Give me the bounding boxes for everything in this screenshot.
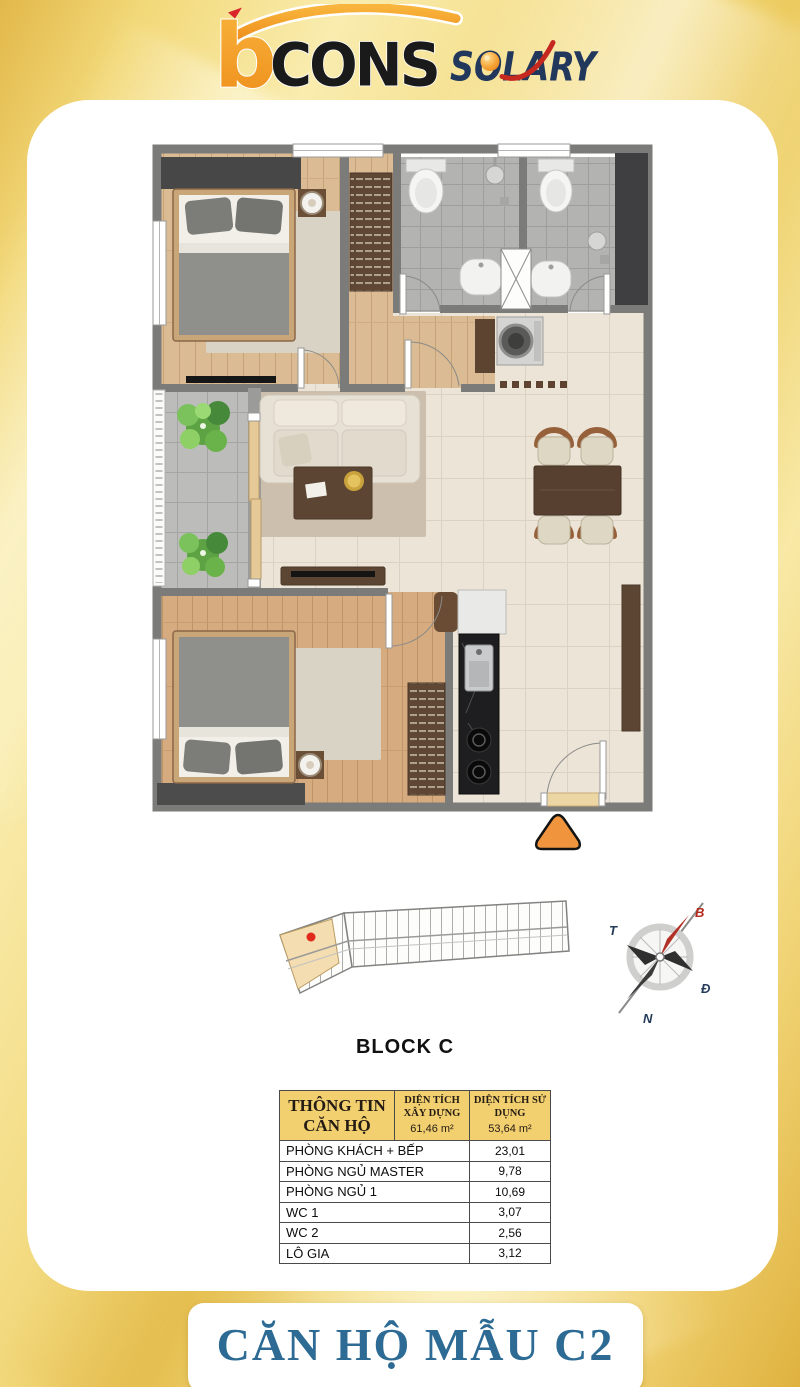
- compass-south-label: N: [643, 1011, 653, 1026]
- built-area-title: DIỆN TÍCH XÂY DỰNG: [404, 1095, 461, 1119]
- wall: [608, 305, 644, 313]
- exterior-ledge: [157, 783, 305, 805]
- master-closet: [350, 173, 392, 291]
- wall: [340, 384, 405, 392]
- wall: [161, 384, 298, 392]
- apartment-info-table: THÔNG TIN CĂN HỘ DIỆN TÍCH XÂY DỰNG 61,4…: [279, 1090, 541, 1264]
- block-label: BLOCK C: [285, 1036, 525, 1059]
- compass-west-label: T: [609, 923, 618, 938]
- master-bed: [173, 189, 295, 341]
- washing-machine: [497, 317, 543, 365]
- apartment-floor-plan: [148, 143, 658, 858]
- corridor-cabinet: [475, 319, 495, 373]
- table-row: PHÒNG KHÁCH + BẾP 23,01: [280, 1141, 551, 1162]
- row-value: 10,69: [470, 1182, 551, 1203]
- apartment-title-banner: CĂN HỘ MẪU C2: [188, 1303, 643, 1387]
- table-row: WC 2 2,56: [280, 1223, 551, 1244]
- bcons-solary-logo: b CONS SOLARY: [202, 4, 602, 100]
- master-wardrobe-dark: [161, 157, 301, 189]
- bedroom2-bed: [173, 631, 295, 783]
- logo-b-letter: b: [214, 5, 277, 101]
- sun-highlight: [484, 55, 489, 60]
- entrance-arrow-icon: [536, 815, 580, 849]
- row-value: 2,56: [470, 1223, 551, 1244]
- master-nightstand: [298, 189, 326, 217]
- logo-cons-text: CONS: [270, 31, 438, 101]
- bedroom2-wardrobe: [408, 683, 445, 795]
- built-area-value: 61,46 m²: [396, 1123, 468, 1136]
- door-jamb: [541, 793, 547, 806]
- row-value: 3,07: [470, 1202, 551, 1223]
- coffee-table: [294, 467, 372, 519]
- table-row: LÔ GIA 3,12: [280, 1243, 551, 1264]
- table-header-usable-area: DIỆN TÍCH SỬ DỤNG 53,64 m²: [470, 1091, 551, 1141]
- unit-location-dot: [307, 933, 316, 942]
- entry-threshold: [547, 793, 599, 806]
- hallway-console: [622, 585, 640, 731]
- row-value: 9,78: [470, 1161, 551, 1182]
- brochure-page: b CONS SOLARY: [0, 0, 800, 1387]
- usable-area-value: 53,64 m²: [471, 1123, 549, 1136]
- logo-solary-text: SOLARY: [450, 45, 599, 91]
- technical-shaft: [501, 249, 531, 309]
- table-header-built-area: DIỆN TÍCH XÂY DỰNG 61,46 m²: [395, 1091, 470, 1141]
- wall: [340, 153, 349, 388]
- row-label: WC 2: [280, 1223, 470, 1244]
- compass-east-label: Đ: [701, 981, 711, 996]
- tv-console: [281, 567, 385, 585]
- row-label: PHÒNG NGỦ MASTER: [280, 1161, 470, 1182]
- row-label: PHÒNG KHÁCH + BẾP: [280, 1141, 470, 1162]
- table-header-info: THÔNG TIN CĂN HỘ: [280, 1091, 395, 1141]
- wall: [519, 153, 527, 253]
- wall: [461, 384, 495, 392]
- usable-area-title: DIỆN TÍCH SỬ DỤNG: [474, 1095, 546, 1119]
- table-row: WC 1 3,07: [280, 1202, 551, 1223]
- structural-column: [615, 153, 648, 305]
- dining-chair: [580, 516, 614, 544]
- table-row: PHÒNG NGỦ MASTER 9,78: [280, 1161, 551, 1182]
- dining-chair: [537, 516, 571, 544]
- row-label: WC 1: [280, 1202, 470, 1223]
- compass-north-label: B: [695, 905, 704, 920]
- sun-icon: [481, 52, 500, 71]
- wall: [393, 305, 400, 313]
- row-label: LÔ GIA: [280, 1243, 470, 1264]
- door-jamb: [599, 793, 605, 806]
- wall: [161, 588, 388, 596]
- row-value: 3,12: [470, 1243, 551, 1264]
- table-row: PHÒNG NGỦ 1 10,69: [280, 1182, 551, 1203]
- compass-icon: B T Đ N: [603, 893, 718, 1033]
- row-value: 23,01: [470, 1141, 551, 1162]
- bedroom2-side-table: [296, 751, 324, 779]
- block-location-map: [266, 894, 572, 1016]
- row-label: PHÒNG NGỦ 1: [280, 1182, 470, 1203]
- table-header-row: THÔNG TIN CĂN HỘ DIỆN TÍCH XÂY DỰNG 61,4…: [280, 1091, 551, 1141]
- master-tv: [186, 376, 276, 383]
- apartment-title: CĂN HỘ MẪU C2: [217, 1318, 615, 1371]
